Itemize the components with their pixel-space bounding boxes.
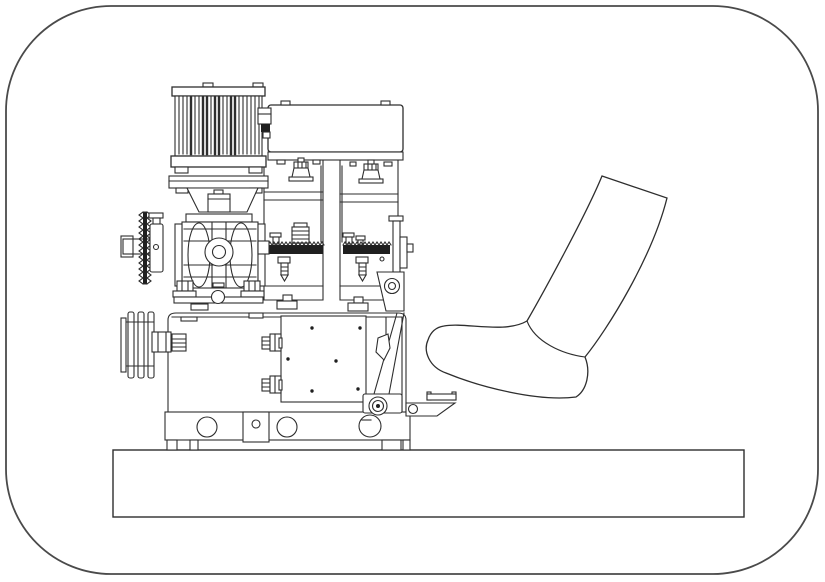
drawing-root — [6, 6, 818, 574]
clamp-bolt — [356, 257, 368, 281]
panel-screw-hole — [310, 326, 313, 329]
mounting-hole — [277, 417, 297, 437]
support-foot — [190, 440, 198, 450]
support-foot — [403, 440, 410, 450]
adjuster-studs — [270, 223, 365, 245]
panel-cable-gland — [262, 376, 282, 393]
worm-gearbox — [173, 214, 269, 310]
technical-drawing — [0, 0, 825, 582]
drain-plug — [212, 291, 225, 304]
electric-motor — [171, 83, 271, 173]
panel-screw-hole — [286, 357, 289, 360]
leg-and-foot-outline — [426, 176, 667, 398]
human-foot — [426, 176, 667, 398]
panel-screw-hole — [358, 326, 361, 329]
mounting-bolt — [359, 415, 381, 437]
pedal-bracket — [406, 392, 456, 416]
hex-nut — [152, 332, 171, 352]
support-foot — [167, 440, 177, 450]
panel-cable-gland — [262, 334, 282, 351]
mounting-hole — [197, 417, 217, 437]
serrated-jaw — [343, 242, 391, 254]
clamp-cable-gland — [359, 160, 383, 183]
clamp-cable-gland — [289, 158, 313, 181]
clamp-bolt — [278, 257, 290, 281]
lever-pivot — [385, 279, 400, 294]
gearbox-boss — [205, 238, 233, 266]
support-foot — [382, 440, 401, 450]
panel-screw-hole — [334, 359, 337, 362]
serrated-jaw — [264, 242, 324, 254]
base-plate — [113, 450, 744, 517]
panel-screw-hole — [356, 387, 359, 390]
chain-sprocket — [121, 212, 163, 284]
panel-screw-hole — [310, 389, 313, 392]
motor-flange — [169, 176, 268, 212]
figure-canvas — [0, 0, 825, 582]
clamp-top-cover — [268, 105, 403, 152]
